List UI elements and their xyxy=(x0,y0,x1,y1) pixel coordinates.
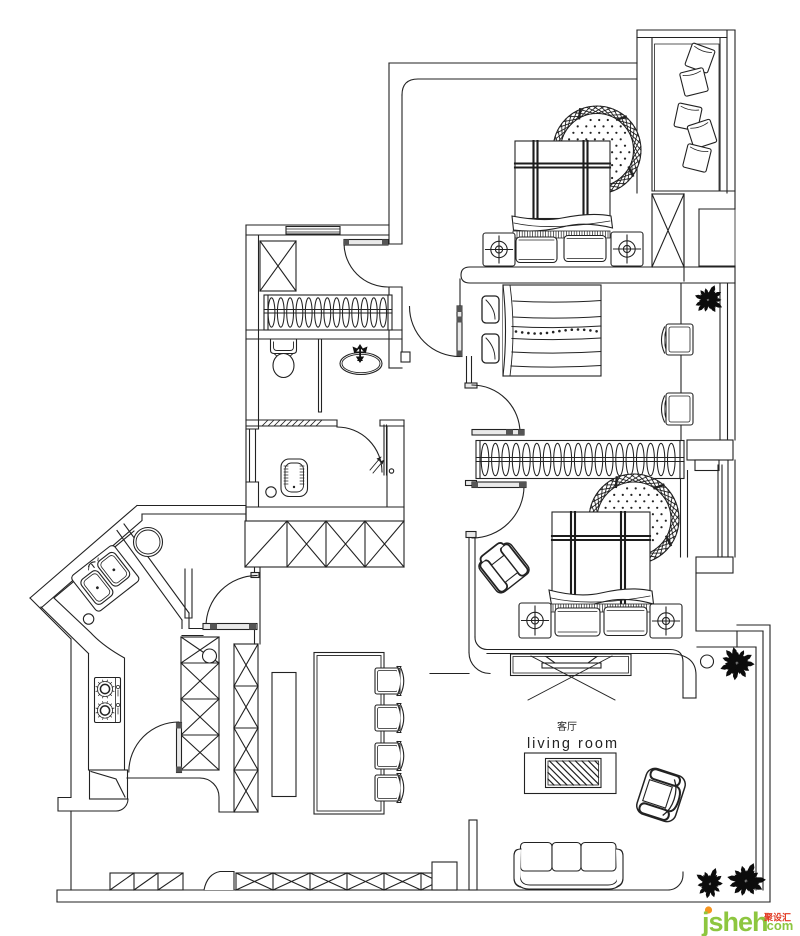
svg-text:客厅: 客厅 xyxy=(557,720,577,733)
svg-text:聚设汇: 聚设汇 xyxy=(763,912,791,923)
svg-text:living room: living room xyxy=(527,736,619,752)
svg-text:jsheh: jsheh xyxy=(701,907,768,936)
